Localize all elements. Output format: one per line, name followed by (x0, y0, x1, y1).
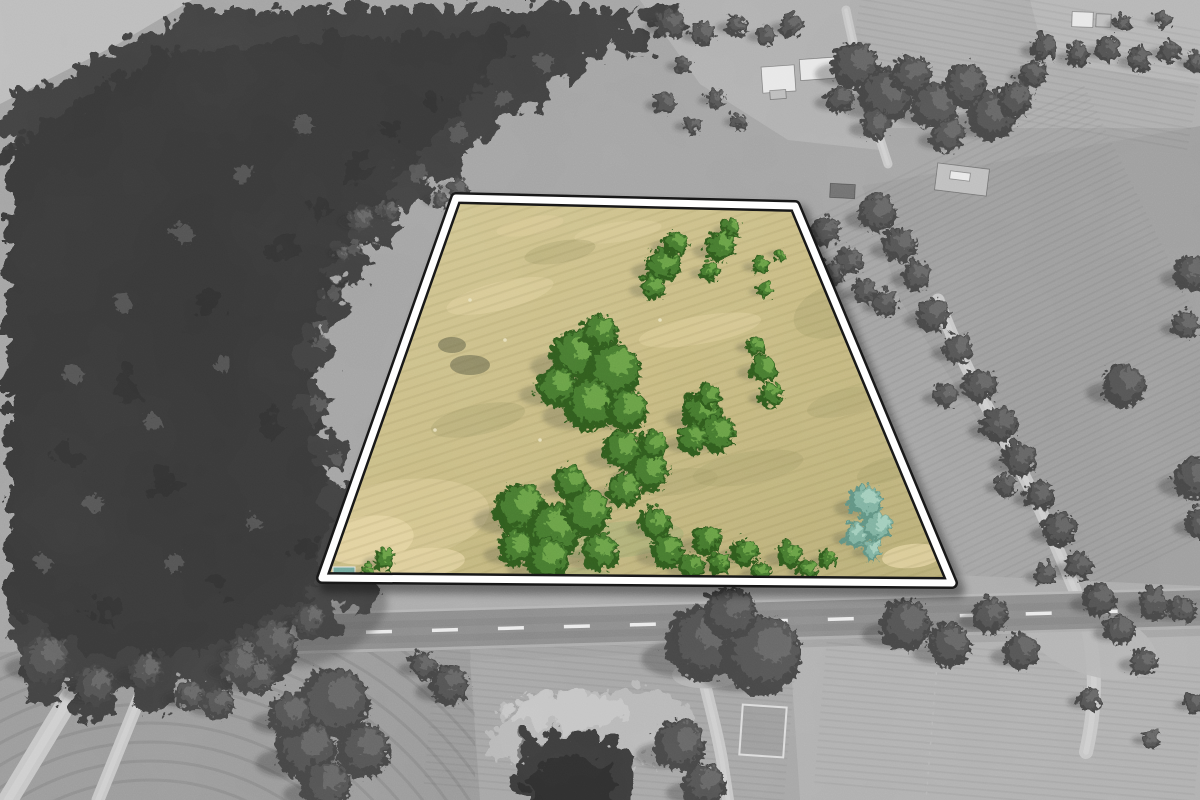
film-grain (0, 0, 1200, 800)
aerial-photo (0, 0, 1200, 800)
aerial-photo-canvas (0, 0, 1200, 800)
